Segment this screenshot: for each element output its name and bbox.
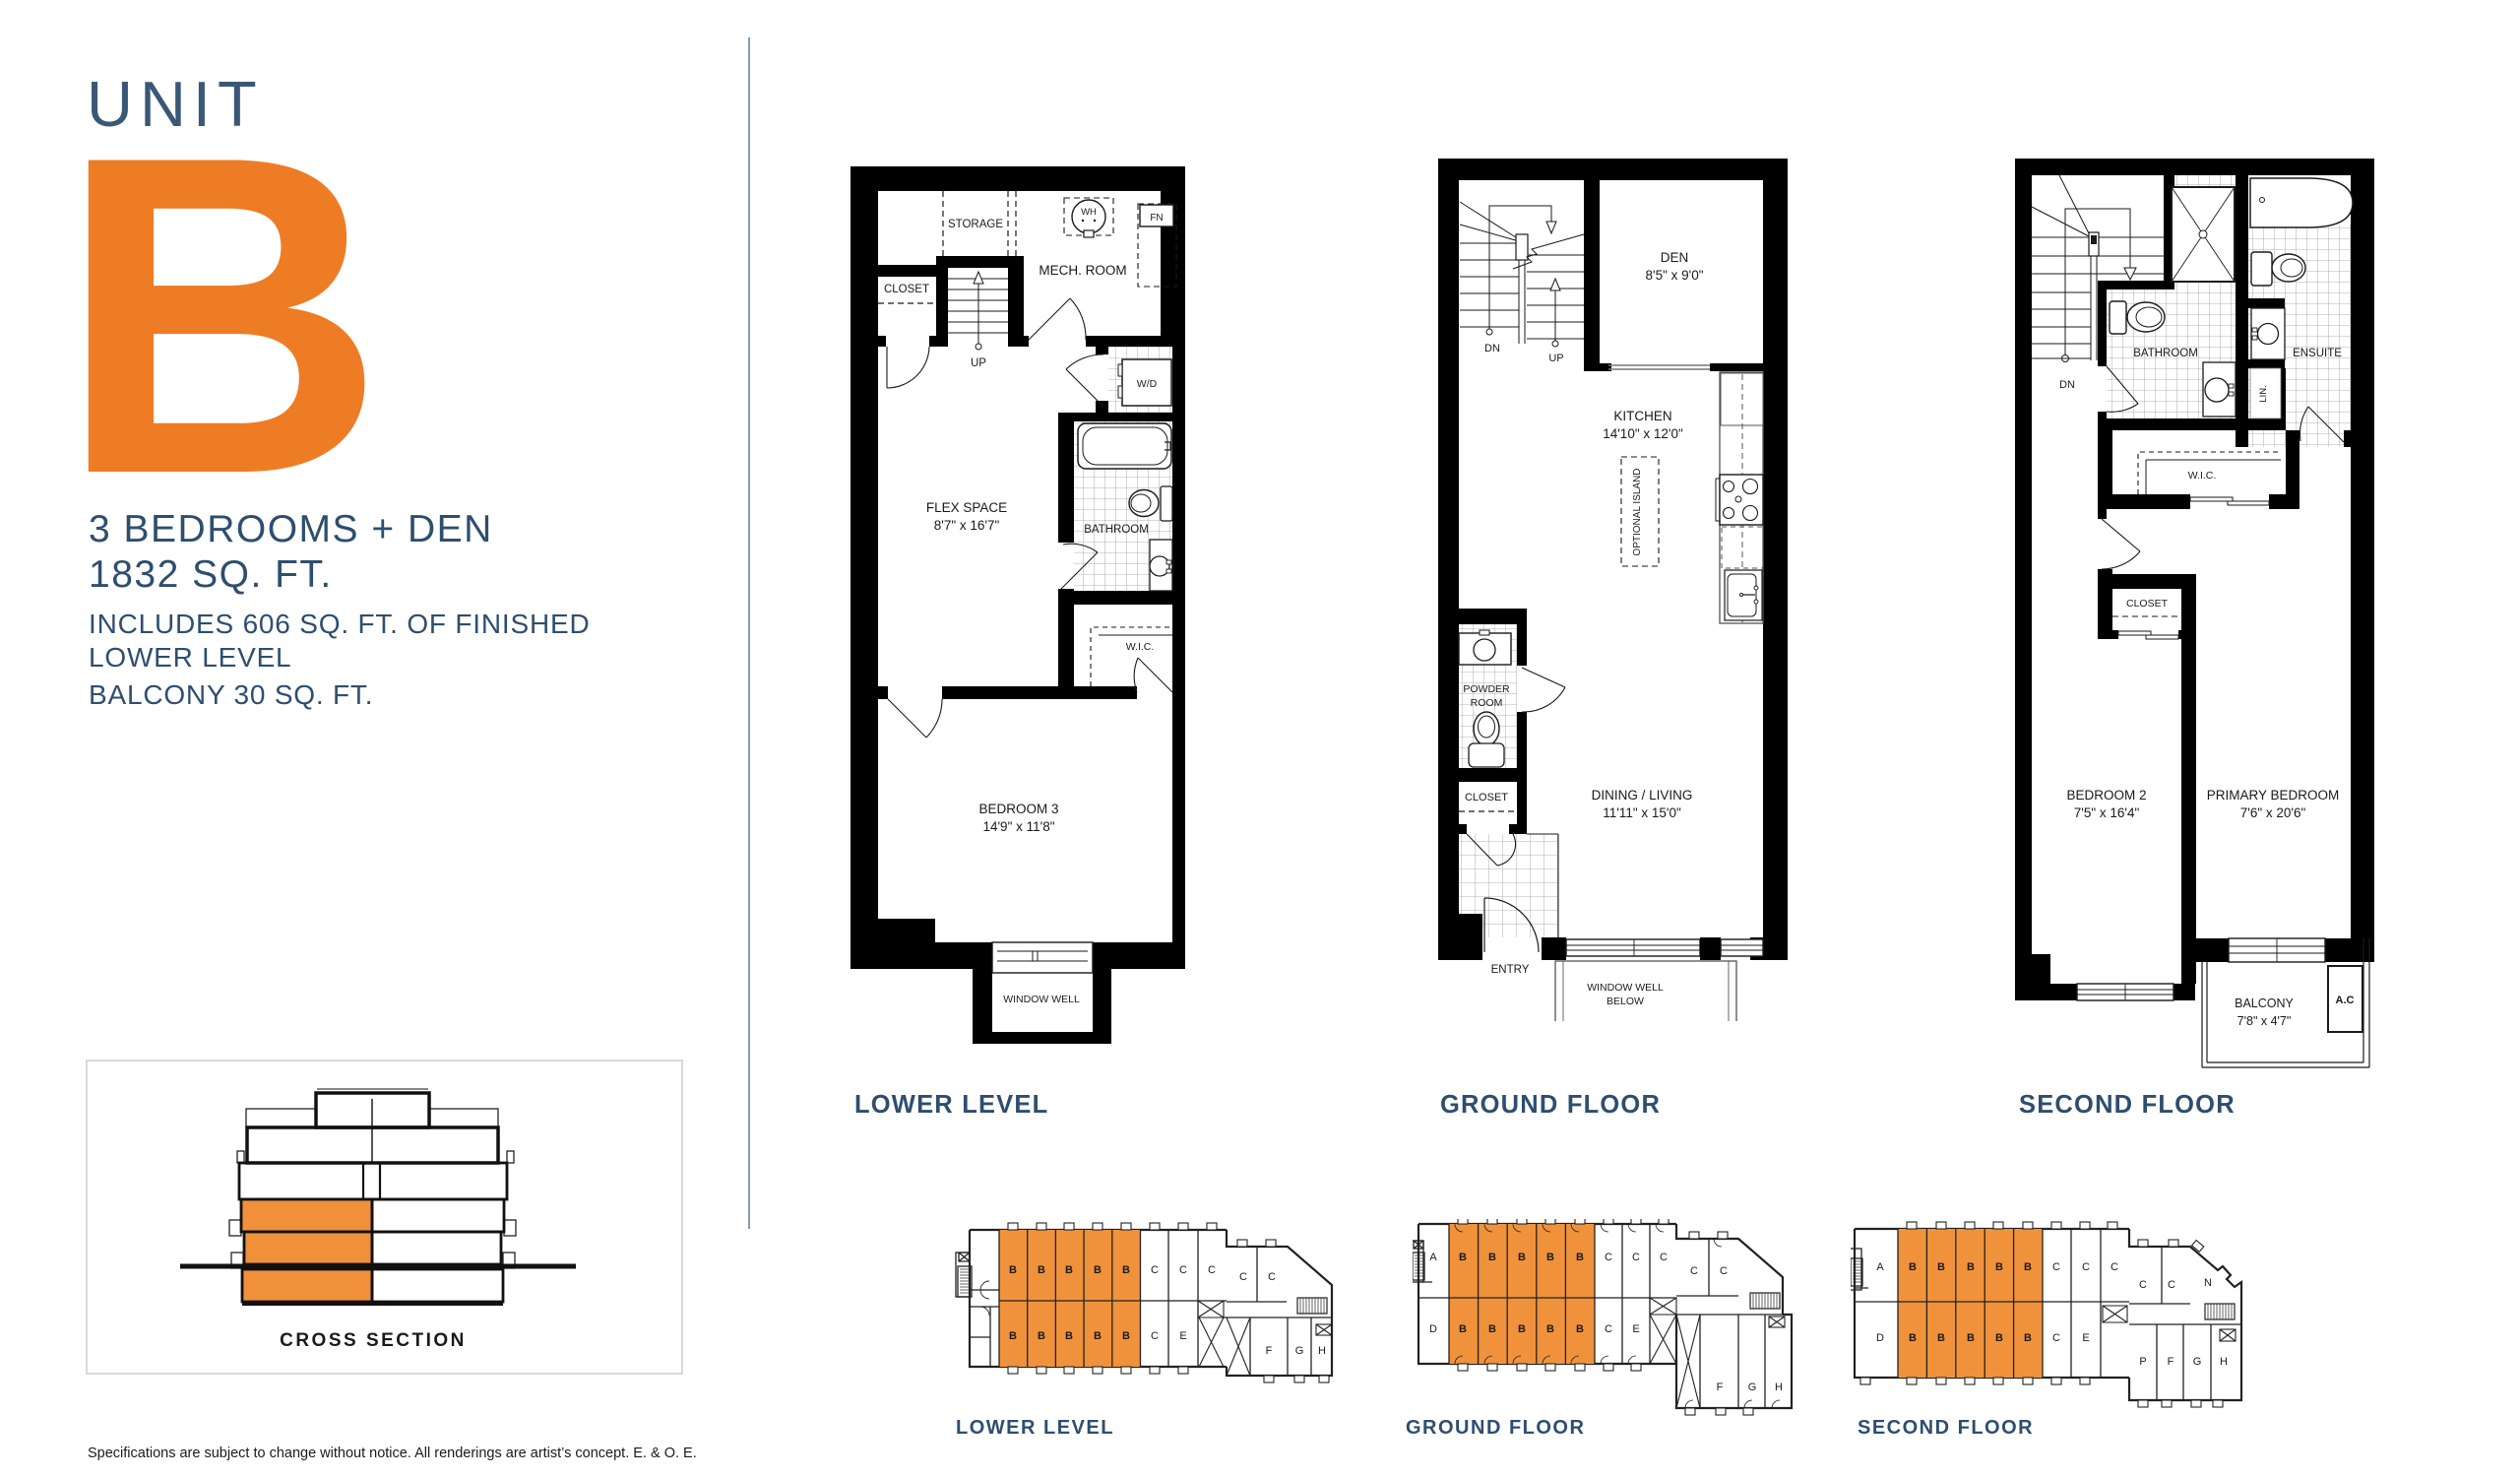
svg-text:W/D: W/D [1137, 378, 1158, 390]
svg-text:BEDROOM 2: BEDROOM 2 [2066, 788, 2146, 803]
svg-text:E: E [1632, 1323, 1639, 1335]
svg-text:D: D [1429, 1323, 1437, 1335]
svg-text:B: B [2024, 1332, 2032, 1344]
svg-text:B: B [1967, 1332, 1975, 1344]
svg-text:UP: UP [971, 357, 986, 369]
svg-text:B: B [1094, 1264, 1102, 1276]
svg-text:C: C [1268, 1271, 1276, 1283]
svg-text:BATHROOM: BATHROOM [2133, 348, 2198, 359]
svg-text:8'5" x 9'0": 8'5" x 9'0" [1645, 268, 1703, 283]
svg-text:C: C [1720, 1265, 1728, 1277]
svg-text:DINING / LIVING: DINING / LIVING [1592, 788, 1693, 803]
svg-text:C: C [2110, 1261, 2118, 1273]
svg-text:C: C [2052, 1261, 2060, 1273]
svg-text:POWDER: POWDER [1463, 683, 1510, 695]
svg-text:14'10" x 12'0": 14'10" x 12'0" [1603, 426, 1683, 441]
svg-text:C: C [1239, 1271, 1247, 1283]
svg-text:PRIMARY BEDROOM: PRIMARY BEDROOM [2207, 788, 2340, 803]
svg-text:7'8" x 4'7": 7'8" x 4'7" [2237, 1014, 2292, 1028]
svg-text:B: B [2024, 1261, 2032, 1273]
svg-text:A: A [1876, 1261, 1884, 1273]
svg-text:A: A [1429, 1252, 1437, 1263]
svg-text:B: B [1909, 1261, 1917, 1273]
svg-text:B: B [1488, 1252, 1496, 1263]
svg-text:W.I.C.: W.I.C. [1126, 641, 1155, 653]
svg-text:BALCONY: BALCONY [2235, 996, 2294, 1010]
svg-text:C: C [1179, 1264, 1187, 1276]
svg-text:BELOW: BELOW [1606, 996, 1644, 1007]
svg-text:C: C [2052, 1332, 2060, 1344]
svg-text:DEN: DEN [1661, 250, 1689, 265]
svg-text:B: B [1576, 1323, 1584, 1335]
svg-text:LIN.: LIN. [2258, 385, 2269, 402]
svg-text:FLEX SPACE: FLEX SPACE [926, 500, 1007, 515]
svg-text:N: N [2204, 1277, 2212, 1289]
svg-text:B: B [1065, 1330, 1073, 1342]
svg-text:B: B [1576, 1252, 1584, 1263]
svg-text:WINDOW WELL: WINDOW WELL [1587, 982, 1664, 994]
svg-text:ENTRY: ENTRY [1491, 964, 1530, 976]
svg-text:WH: WH [1081, 207, 1097, 218]
svg-text:F: F [1266, 1345, 1273, 1357]
svg-text:7'5" x 16'4": 7'5" x 16'4" [2074, 805, 2140, 820]
svg-text:B: B [1459, 1323, 1467, 1335]
svg-text:E: E [1179, 1330, 1186, 1342]
svg-text:B: B [1065, 1264, 1073, 1276]
svg-text:B: B [1488, 1323, 1496, 1335]
svg-text:G: G [2193, 1356, 2202, 1368]
svg-text:G: G [1748, 1382, 1757, 1393]
svg-text:B: B [1038, 1264, 1045, 1276]
svg-text:B: B [1122, 1264, 1130, 1276]
svg-text:OPTIONAL ISLAND: OPTIONAL ISLAND [1632, 468, 1643, 555]
svg-text:DN: DN [2059, 379, 2075, 391]
svg-text:B: B [1009, 1330, 1017, 1342]
svg-text:C: C [1690, 1265, 1698, 1277]
svg-text:B: B [1937, 1332, 1945, 1344]
svg-text:B: B [1038, 1330, 1045, 1342]
svg-text:H: H [1318, 1345, 1326, 1357]
svg-text:D: D [1876, 1332, 1884, 1344]
svg-text:CROSS SECTION: CROSS SECTION [280, 1330, 467, 1351]
svg-text:B: B [1909, 1332, 1917, 1344]
svg-text:F: F [1717, 1382, 1724, 1393]
svg-text:C: C [1151, 1264, 1159, 1276]
svg-text:C: C [2139, 1279, 2147, 1291]
svg-text:C: C [2082, 1261, 2090, 1273]
svg-text:C: C [1151, 1330, 1159, 1342]
svg-text:H: H [1775, 1382, 1783, 1393]
svg-text:F: F [2168, 1356, 2174, 1368]
svg-text:A.C: A.C [2336, 995, 2355, 1006]
svg-text:B: B [1009, 1264, 1017, 1276]
svg-text:14'9" x 11'8": 14'9" x 11'8" [982, 819, 1054, 834]
svg-text:B: B [1459, 1252, 1467, 1263]
svg-text:DN: DN [1484, 343, 1500, 354]
svg-text:CLOSET: CLOSET [2126, 598, 2169, 610]
svg-text:MECH. ROOM: MECH. ROOM [1039, 263, 1126, 278]
svg-text:G: G [1295, 1345, 1304, 1357]
svg-text:C: C [1208, 1264, 1216, 1276]
svg-text:C: C [1660, 1252, 1668, 1263]
svg-text:CLOSET: CLOSET [1465, 792, 1508, 803]
svg-text:7'6" x 20'6": 7'6" x 20'6" [2240, 805, 2306, 820]
svg-text:WINDOW WELL: WINDOW WELL [1003, 994, 1080, 1005]
svg-text:C: C [1605, 1323, 1612, 1335]
svg-text:KITCHEN: KITCHEN [1613, 409, 1671, 423]
svg-text:CLOSET: CLOSET [884, 284, 929, 295]
svg-text:STORAGE: STORAGE [948, 219, 1003, 230]
svg-text:B: B [1094, 1330, 1102, 1342]
svg-text:B: B [1937, 1261, 1945, 1273]
svg-text:B: B [1546, 1252, 1554, 1263]
svg-text:E: E [2082, 1332, 2089, 1344]
svg-text:B: B [1995, 1261, 2003, 1273]
svg-text:11'11" x 15'0": 11'11" x 15'0" [1603, 805, 1681, 820]
svg-text:C: C [1632, 1252, 1640, 1263]
svg-text:W.I.C.: W.I.C. [2188, 470, 2217, 482]
svg-text:B: B [1518, 1323, 1526, 1335]
svg-text:C: C [2168, 1279, 2175, 1291]
svg-text:ENSUITE: ENSUITE [2293, 348, 2342, 359]
svg-text:FN: FN [1150, 213, 1163, 224]
svg-text:B: B [1546, 1323, 1554, 1335]
svg-text:ROOM: ROOM [1471, 697, 1503, 709]
svg-text:H: H [2220, 1356, 2228, 1368]
svg-text:B: B [1518, 1252, 1526, 1263]
svg-text:C: C [1605, 1252, 1612, 1263]
svg-text:UP: UP [1548, 353, 1563, 364]
svg-text:B: B [1967, 1261, 1975, 1273]
svg-text:8'7" x 16'7": 8'7" x 16'7" [934, 518, 1000, 533]
svg-text:BEDROOM 3: BEDROOM 3 [978, 802, 1058, 816]
svg-text:P: P [2139, 1356, 2146, 1368]
svg-text:BATHROOM: BATHROOM [1084, 524, 1149, 536]
svg-text:B: B [1995, 1332, 2003, 1344]
svg-text:B: B [1122, 1330, 1130, 1342]
